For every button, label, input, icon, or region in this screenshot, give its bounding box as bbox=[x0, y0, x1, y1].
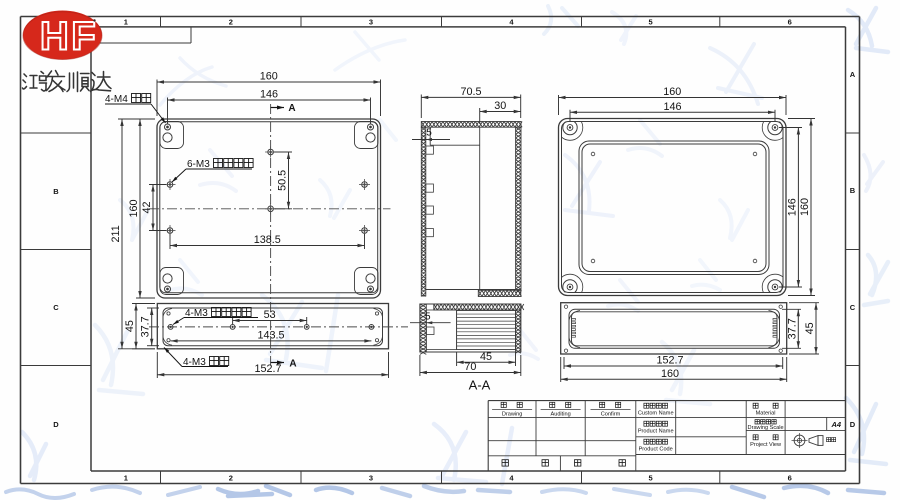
svg-text:146: 146 bbox=[786, 198, 798, 216]
svg-text:A4: A4 bbox=[831, 420, 842, 429]
svg-text:B: B bbox=[53, 187, 59, 196]
svg-text:152.7: 152.7 bbox=[656, 355, 683, 367]
svg-text:146: 146 bbox=[663, 101, 681, 113]
svg-text:37.7: 37.7 bbox=[140, 316, 152, 337]
svg-text:37.7: 37.7 bbox=[786, 318, 798, 339]
svg-text:45: 45 bbox=[124, 320, 136, 332]
svg-text:A: A bbox=[288, 103, 295, 114]
svg-text:Material: Material bbox=[756, 411, 776, 417]
svg-text:50.5: 50.5 bbox=[277, 170, 289, 191]
svg-text:1: 1 bbox=[124, 474, 128, 483]
svg-text:5: 5 bbox=[649, 18, 653, 27]
svg-text:C: C bbox=[53, 303, 59, 312]
svg-text:Drawing: Drawing bbox=[502, 412, 523, 418]
svg-text:6: 6 bbox=[788, 18, 792, 27]
svg-text:30: 30 bbox=[494, 100, 506, 112]
svg-text:5: 5 bbox=[425, 311, 431, 322]
svg-text:Drawing Scale: Drawing Scale bbox=[748, 425, 784, 431]
svg-text:143.5: 143.5 bbox=[257, 329, 284, 341]
svg-text:160: 160 bbox=[799, 198, 811, 216]
svg-text:3: 3 bbox=[369, 474, 373, 483]
svg-text:1: 1 bbox=[124, 18, 128, 27]
svg-text:70.5: 70.5 bbox=[460, 86, 481, 98]
svg-text:Custom Name: Custom Name bbox=[638, 411, 674, 417]
svg-text:6: 6 bbox=[788, 474, 792, 483]
svg-text:152.7: 152.7 bbox=[254, 363, 281, 375]
svg-text:4-M4: 4-M4 bbox=[105, 94, 128, 105]
svg-text:Confirm: Confirm bbox=[601, 412, 621, 418]
svg-text:A: A bbox=[850, 70, 856, 79]
svg-text:138.5: 138.5 bbox=[254, 234, 281, 246]
svg-text:Product Name: Product Name bbox=[638, 429, 674, 435]
svg-text:2: 2 bbox=[229, 474, 233, 483]
svg-text:160: 160 bbox=[260, 71, 278, 83]
svg-text:3: 3 bbox=[369, 18, 373, 27]
svg-text:5: 5 bbox=[649, 474, 653, 483]
svg-text:70: 70 bbox=[464, 361, 476, 373]
svg-text:160: 160 bbox=[663, 86, 681, 98]
svg-text:2: 2 bbox=[229, 18, 233, 27]
svg-text:A: A bbox=[289, 359, 296, 370]
svg-text:146: 146 bbox=[260, 89, 278, 101]
svg-text:211: 211 bbox=[110, 225, 122, 242]
svg-text:HF: HF bbox=[40, 15, 98, 59]
svg-text:42: 42 bbox=[141, 201, 153, 213]
svg-text:C: C bbox=[850, 303, 856, 312]
svg-text:160: 160 bbox=[661, 368, 679, 380]
svg-text:D: D bbox=[850, 420, 856, 429]
svg-text:6-M3: 6-M3 bbox=[187, 159, 210, 170]
svg-text:45: 45 bbox=[804, 322, 816, 334]
svg-text:53: 53 bbox=[264, 309, 276, 321]
svg-text:D: D bbox=[53, 420, 59, 429]
svg-text:Auditing: Auditing bbox=[550, 412, 570, 418]
svg-text:5: 5 bbox=[426, 128, 432, 139]
svg-text:45: 45 bbox=[480, 351, 492, 363]
svg-text:160: 160 bbox=[128, 199, 140, 217]
svg-text:Product Code: Product Code bbox=[639, 447, 673, 453]
svg-text:B: B bbox=[850, 186, 856, 195]
svg-text:A-A: A-A bbox=[469, 378, 491, 393]
svg-text:Project View: Project View bbox=[750, 442, 782, 448]
